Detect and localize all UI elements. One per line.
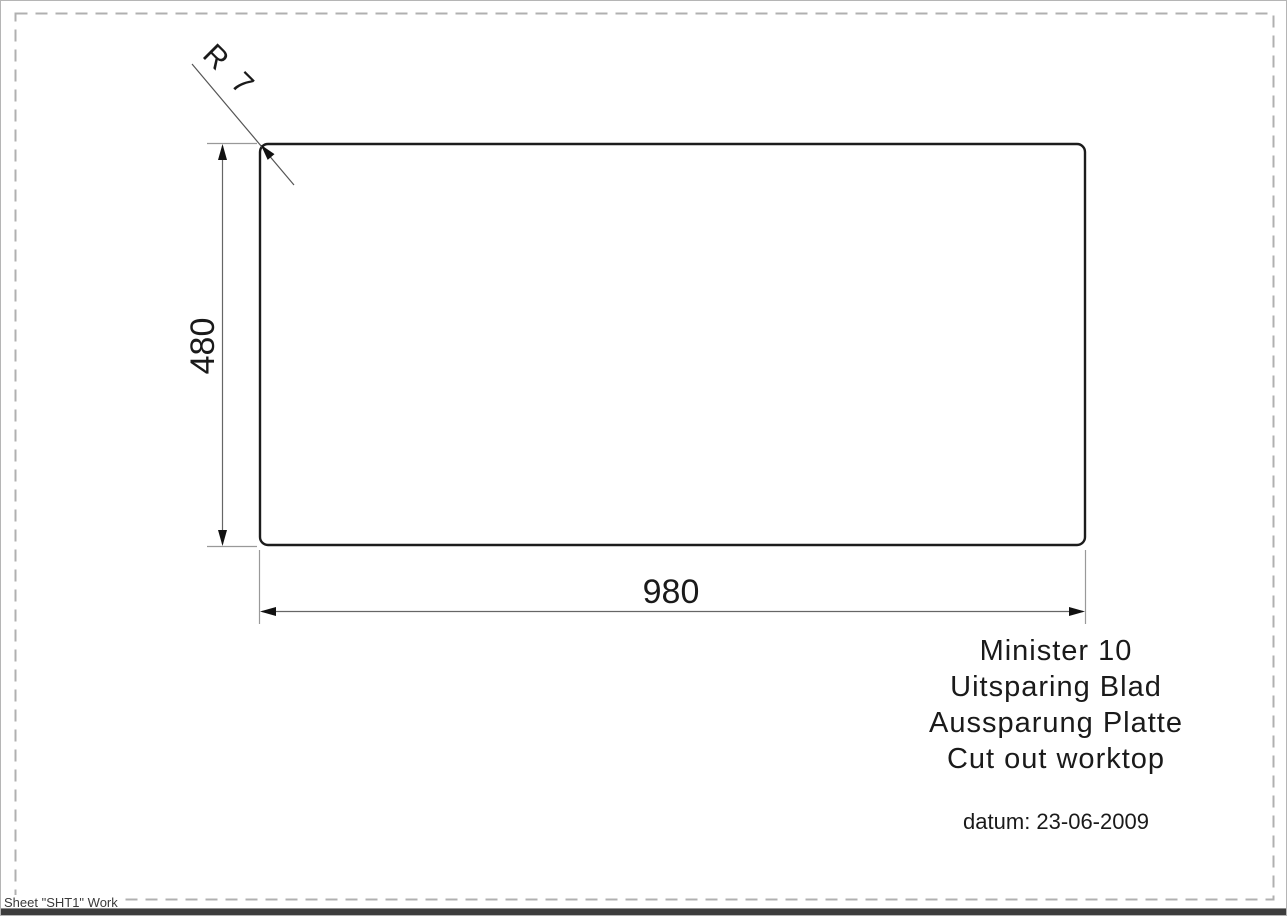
title-line-nl: Uitsparing Blad: [906, 669, 1206, 705]
drawing-viewport[interactable]: 480 980 R 7 Minister 10 Uitsparing Blad …: [0, 0, 1287, 916]
height-dimension-value: 480: [184, 318, 222, 375]
date-label: datum: 23-06-2009: [906, 809, 1206, 835]
arrow-right-icon: [1069, 607, 1085, 616]
arrow-down-icon: [218, 530, 227, 546]
arrow-left-icon: [260, 607, 276, 616]
width-dimension: 980: [260, 550, 1086, 624]
height-dimension: 480: [184, 144, 257, 547]
cutout-rectangle: [260, 144, 1085, 545]
window-bottom-edge: [1, 908, 1286, 915]
arrow-up-icon: [218, 144, 227, 160]
title-line-de: Aussparung Platte: [906, 705, 1206, 741]
width-dimension-value: 980: [643, 573, 700, 611]
title-line-en: Cut out worktop: [906, 741, 1206, 777]
drawing-canvas: 480 980 R 7: [1, 1, 1287, 916]
radius-value: R 7: [196, 38, 263, 105]
title-line-product: Minister 10: [906, 633, 1206, 669]
title-block: Minister 10 Uitsparing Blad Aussparung P…: [906, 633, 1206, 777]
